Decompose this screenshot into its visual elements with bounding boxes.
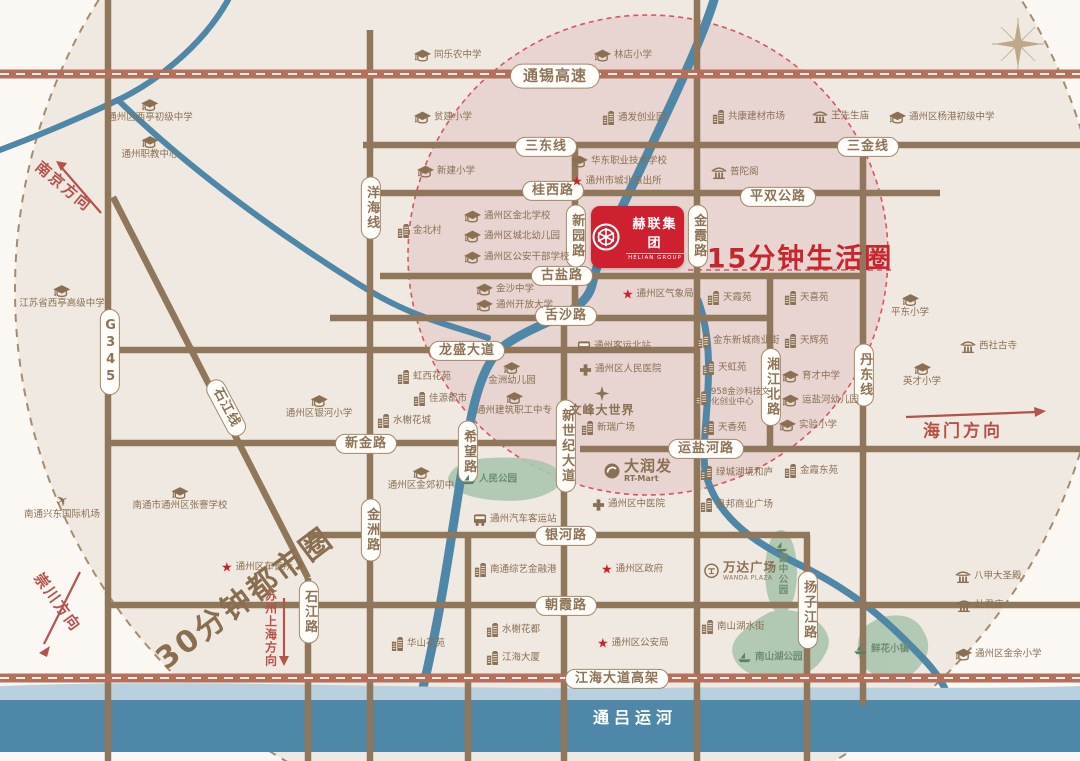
rt-mart-subtitle: RT-Mart (624, 475, 672, 483)
poi-label: 通发创业园 (618, 113, 666, 124)
road-label-pill: G345 (100, 309, 120, 395)
poi-school: 通州区银河小学 (286, 395, 353, 420)
poi-school: 南通市通州区张謇学校 (132, 487, 227, 512)
poi-label: 金沙中学 (496, 285, 534, 296)
poi-label: 通州职教中心 (121, 150, 178, 161)
poi-school: 英才小学 (903, 363, 941, 388)
poi-bus: 通州汽车客运站 (473, 514, 557, 527)
rt-mart-logo: 大润发 RT-Mart (604, 459, 672, 483)
star-icon: ★ (601, 564, 613, 577)
road-label-pill: 银河路 (535, 526, 597, 546)
school-icon (782, 395, 799, 408)
poi-label: 天辉苑 (800, 336, 829, 347)
poi-school: 实验小学 (779, 420, 837, 433)
poi-label: 林店小学 (614, 51, 652, 62)
building-icon (700, 466, 713, 480)
poi-label: 绿城湖境和庐 (716, 468, 773, 479)
building-icon (707, 291, 720, 305)
poi-label: 华东职业技术学校 (591, 157, 667, 168)
poi-label: 贫建小学 (434, 113, 472, 124)
poi-label: 人民公园 (479, 475, 517, 486)
poi-label: 霞中公园 (776, 553, 787, 595)
poi-label: 英才小学 (903, 377, 941, 388)
poi-label: 金洲幼儿园 (488, 376, 536, 387)
building-icon (784, 334, 797, 348)
road-label-pill: 三东线 (515, 137, 577, 157)
poi-star: ★通州区气象局 (622, 289, 694, 302)
poi-label: 天虹苑 (718, 363, 747, 374)
building-icon (702, 421, 715, 435)
poi-school: 新建小学 (417, 166, 475, 179)
poi-label: 天香苑 (718, 423, 747, 434)
school-icon (412, 467, 429, 480)
poi-label: 水榭花城 (393, 416, 431, 427)
temple-icon (956, 600, 972, 613)
building-icon (702, 361, 715, 375)
road-label-pill: 洋海线 (361, 177, 381, 240)
building-icon (701, 620, 714, 634)
poi-label: 南通兴东国际机场 (24, 510, 100, 521)
poi-label: 通州区人民医院 (595, 365, 662, 376)
school-icon (141, 99, 158, 112)
poi-school: 通州区西亭初级中学 (107, 99, 193, 124)
poi-park: 南山湖公园 (737, 653, 803, 664)
poi-star: ★通州区政府 (601, 564, 663, 577)
poi-label: 金东新城商业街 (713, 336, 780, 347)
poi-school: 通州开放大学 (476, 300, 553, 313)
poi-building: 958金沙科技文化创业中心 (695, 388, 777, 408)
poi-label: 平东小学 (891, 308, 929, 319)
building-icon (581, 421, 594, 435)
poi-building: 天霞苑 (707, 291, 752, 305)
poi-school: 平东小学 (891, 294, 929, 319)
wenfeng-name: 文峰大世界 (569, 401, 634, 418)
poi-building: 水榭花城 (377, 414, 431, 428)
building-icon (397, 370, 410, 384)
poi-label: 通州建筑职工中专 (476, 406, 552, 417)
road-label-pill: 新金路 (335, 434, 397, 454)
school-icon (464, 231, 481, 244)
poi-park: 鲜花小镇 (853, 645, 909, 656)
poi-label: 金北村 (413, 226, 442, 237)
poi-label: 王先生庙 (831, 112, 869, 123)
star-icon: ★ (221, 562, 233, 575)
poi-label: 华山花苑 (407, 639, 445, 650)
poi-building: 水榭花都 (486, 623, 540, 637)
poi-label: 通州区政府 (616, 565, 664, 576)
poi-school: 通州区金郊初中 (388, 467, 455, 492)
building-icon (784, 464, 797, 478)
poi-temple: 王先生庙 (812, 111, 869, 124)
hospital-icon (592, 499, 605, 512)
direction-label: 海门方向 (923, 417, 1003, 442)
poi-building: 新瑞广场 (581, 421, 635, 435)
poi-school: 通州区金北学校 (464, 211, 551, 224)
helian-gear-icon (591, 222, 621, 252)
school-icon (782, 371, 799, 384)
building-icon (602, 111, 615, 125)
poi-label: 通州区气象局 (637, 290, 694, 301)
poi-bus: 通州客运北站 (577, 341, 651, 354)
location-map: 赫联集团 HELIAN GROUP 文峰大世界 大润发 RT-Mart 万达广场… (0, 0, 1080, 761)
poi-building: 江海大厦 (486, 651, 540, 665)
poi-school: 育才中学 (782, 371, 840, 384)
road-label-pill: 金洲路 (361, 499, 381, 562)
school-icon (476, 284, 493, 297)
boat-icon (461, 475, 476, 485)
poi-label: 水榭花都 (502, 625, 540, 636)
school-icon (955, 649, 972, 662)
school-icon (417, 166, 434, 179)
road-label-pill: 通锡高速 (510, 64, 600, 89)
school-icon (476, 300, 493, 313)
poi-building: 通发创业园 (602, 111, 666, 125)
poi-label: 通州区杨港初级中学 (909, 113, 995, 124)
building-icon (695, 391, 708, 405)
poi-label: 通州市城北派出所 (586, 177, 662, 188)
poi-building: 天虹苑 (702, 361, 747, 375)
poi-label: 南通市通州区张謇学校 (132, 501, 227, 512)
poi-building: 华山花苑 (391, 637, 445, 651)
poi-parkv: 霞中公园 (774, 542, 789, 595)
poi-label: 新瑞广场 (597, 423, 635, 434)
building-icon (474, 563, 487, 577)
poi-building: 南通综艺金融港 (474, 563, 557, 577)
poi-building: 金霞东苑 (784, 464, 838, 478)
poi-temple: 普陀阁 (711, 167, 759, 180)
building-icon (397, 224, 410, 238)
poi-label: 同乐农中学 (434, 51, 482, 62)
boat-icon (774, 542, 789, 552)
school-icon (414, 112, 431, 125)
building-icon (377, 414, 390, 428)
helian-name: 赫联集团 (626, 213, 684, 251)
road-label-pill: 江海大道高架 (565, 669, 669, 689)
poi-school: 通州区城北幼儿园 (464, 231, 560, 244)
road-label-pill: 平双公路 (740, 187, 816, 207)
poi-label: 运盐河幼儿园 (802, 396, 859, 407)
school-icon (889, 112, 906, 125)
poi-school: 贫建小学 (414, 112, 472, 125)
poi-label: 江苏省西亭高级中学 (19, 299, 105, 310)
school-icon (913, 363, 930, 376)
building-icon (712, 110, 725, 124)
road-label-pill: 运盐河路 (668, 439, 744, 459)
poi-building: 天香苑 (702, 421, 747, 435)
rt-mart-name: 大润发 (624, 459, 672, 474)
hospital-icon (579, 364, 592, 377)
poi-school: 通州建筑职工中专 (476, 392, 552, 417)
helian-group-logo: 赫联集团 HELIAN GROUP (591, 206, 684, 268)
temple-icon (960, 341, 976, 354)
school-icon (571, 156, 588, 169)
poi-school: 通州区杨港初级中学 (889, 112, 995, 125)
building-icon (784, 291, 797, 305)
poi-hospital: 通州区人民医院 (579, 364, 662, 377)
canal-band (0, 700, 1080, 752)
poi-label: 通州客运北站 (594, 342, 651, 353)
poi-temple: 西社古寺 (960, 341, 1017, 354)
poi-school: 林店小学 (594, 50, 652, 63)
poi-building: 金北村 (397, 224, 442, 238)
road-label-pill: 古盐路 (531, 266, 593, 286)
road-label-pill: 石江路 (299, 581, 319, 644)
poi-school: 运盐河幼儿园 (782, 395, 859, 408)
school-icon (901, 294, 918, 307)
poi-building: 天辉苑 (784, 334, 829, 348)
poi-label: 南通综艺金融港 (490, 565, 557, 576)
wanda-name: 万达广场 (723, 561, 777, 574)
school-icon (310, 395, 327, 408)
poi-label: 佳源都市 (429, 394, 467, 405)
plane-icon: ✈ (56, 494, 69, 509)
poi-temple: 灶君庙 (956, 600, 1004, 613)
star-icon: ★ (597, 638, 609, 651)
poi-label: 江海大厦 (502, 653, 540, 664)
poi-school: 金洲幼儿园 (488, 362, 536, 387)
building-icon (486, 651, 499, 665)
poi-label: 958金沙科技文化创业中心 (711, 388, 777, 408)
poi-label: 通州区公安局 (612, 639, 669, 650)
poi-building: 佳源都市 (413, 392, 467, 406)
poi-label: 通州汽车客运站 (490, 515, 557, 526)
poi-school: 金沙中学 (476, 284, 534, 297)
poi-building: 绿城湖境和庐 (700, 466, 773, 480)
wanda-plaza-logo: 万达广场 WANDA PLAZA (704, 561, 777, 581)
school-icon (171, 487, 188, 500)
building-icon (697, 334, 710, 348)
poi-school: 通州区公安干部学校 (464, 252, 570, 265)
school-icon (141, 136, 158, 149)
poi-school: 江苏省西亭高级中学 (19, 285, 105, 310)
road-label-pill: 扬子江路 (798, 571, 818, 649)
canal-label: 通吕运河 (593, 704, 677, 728)
school-icon (414, 50, 431, 63)
poi-star: ★通州区公安局 (597, 638, 669, 651)
poi-label: 通州区西亭初级中学 (107, 113, 193, 124)
star-icon: ★ (622, 289, 634, 302)
poi-label: 通州开放大学 (496, 301, 553, 312)
poi-label: 西社古寺 (979, 342, 1017, 353)
poi-school: 通州职教中心 (121, 136, 178, 161)
poi-label: 通州区公安干部学校 (484, 253, 570, 264)
poi-building: 奥邦商业广场 (700, 498, 773, 512)
poi-building: 虹西花苑 (397, 370, 451, 384)
school-icon (53, 285, 70, 298)
boat-icon (737, 653, 752, 663)
poi-temple: 八甲大圣殿 (955, 571, 1022, 584)
poi-label: 通州区金北学校 (484, 212, 551, 223)
poi-label: 奥邦商业广场 (716, 500, 773, 511)
poi-label: 通州区金余小学 (975, 650, 1042, 661)
building-icon (413, 392, 426, 406)
poi-building: 天喜苑 (784, 291, 829, 305)
poi-label: 鲜花小镇 (871, 645, 909, 656)
wanda-icon (704, 564, 719, 579)
poi-label: 育才中学 (802, 372, 840, 383)
poi-star: ★通州市城北派出所 (571, 176, 662, 189)
building-icon (700, 498, 713, 512)
road-label-pill: 金霞路 (688, 205, 708, 268)
bus-icon (577, 341, 591, 354)
poi-label: 共康建材市场 (728, 112, 785, 123)
poi-label: 普陀阁 (730, 168, 759, 179)
school-icon (464, 252, 481, 265)
building-icon (486, 623, 499, 637)
poi-building: 南山湖水街 (701, 620, 765, 634)
poi-building: 金东新城商业街 (697, 334, 780, 348)
school-icon (505, 392, 522, 405)
star-icon: ★ (571, 176, 583, 189)
poi-school: 同乐农中学 (414, 50, 482, 63)
poi-label: 通州区银河小学 (286, 409, 353, 420)
poi-label: 南山湖公园 (755, 653, 803, 664)
boat-icon (853, 645, 868, 655)
road-label-pill: 朝霞路 (535, 596, 597, 616)
poi-school: 通州区金余小学 (955, 649, 1042, 662)
poi-park: 人民公园 (461, 475, 517, 486)
poi-label: 通州区金郊初中 (388, 481, 455, 492)
poi-label: 天霞苑 (723, 293, 752, 304)
wanda-subtitle: WANDA PLAZA (723, 575, 777, 581)
poi-plane: ✈南通兴东国际机场 (24, 494, 100, 521)
poi-label: 新建小学 (437, 167, 475, 178)
temple-icon (812, 111, 828, 124)
poi-building: 共康建材市场 (712, 110, 785, 124)
poi-label: 通州区城北幼儿园 (484, 232, 560, 243)
temple-icon (711, 167, 727, 180)
poi-label: 南山湖水街 (717, 622, 765, 633)
poi-label: 灶君庙 (975, 601, 1004, 612)
bus-icon (473, 514, 487, 527)
wenfeng-world-logo: 文峰大世界 (569, 386, 634, 418)
poi-label: 八甲大圣殿 (974, 572, 1022, 583)
poi-hospital: 通州区中医院 (592, 499, 665, 512)
poi-label: 金霞东苑 (800, 466, 838, 477)
poi-school: 华东职业技术学校 (571, 156, 667, 169)
poi-label: 天喜苑 (800, 293, 829, 304)
building-icon (391, 637, 404, 651)
zone-label: 15分钟生活圈 (707, 237, 894, 276)
poi-label: 通州区中医院 (608, 500, 665, 511)
poi-label: 虹西花苑 (413, 372, 451, 383)
school-icon (503, 362, 520, 375)
helian-subtitle: HELIAN GROUP (626, 253, 684, 261)
school-icon (464, 211, 481, 224)
temple-icon (955, 571, 971, 584)
school-icon (779, 420, 796, 433)
wenfeng-star-icon (594, 386, 609, 401)
rt-mart-icon (604, 463, 620, 479)
road-label-pill: 三金线 (837, 137, 899, 157)
school-icon (594, 50, 611, 63)
poi-label: 实验小学 (799, 421, 837, 432)
road-label-pill: 龙盛大道 (429, 341, 505, 361)
